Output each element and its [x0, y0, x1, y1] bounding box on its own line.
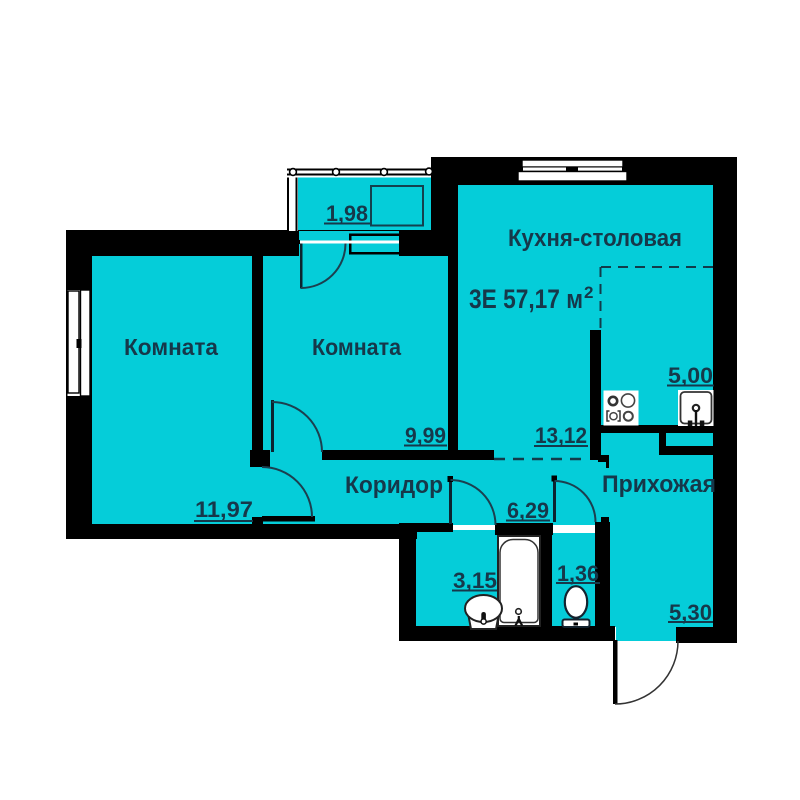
svg-text:13,12: 13,12 — [535, 423, 587, 448]
svg-text:11,97: 11,97 — [195, 497, 253, 522]
svg-text:3Е 57,17 м: 3Е 57,17 м — [469, 284, 583, 314]
svg-text:2: 2 — [584, 283, 593, 302]
svg-text:5,00: 5,00 — [668, 363, 713, 388]
svg-text:9,99: 9,99 — [405, 423, 446, 448]
svg-text:Комната: Комната — [124, 334, 218, 360]
svg-text:Коридор: Коридор — [345, 472, 443, 499]
svg-text:Кухня-столовая: Кухня-столовая — [508, 225, 682, 252]
svg-text:3,15: 3,15 — [453, 568, 497, 593]
svg-text:6,29: 6,29 — [507, 498, 549, 523]
svg-text:Прихожая: Прихожая — [602, 471, 716, 498]
svg-text:Комната: Комната — [312, 334, 401, 360]
svg-text:1,98: 1,98 — [326, 201, 368, 226]
